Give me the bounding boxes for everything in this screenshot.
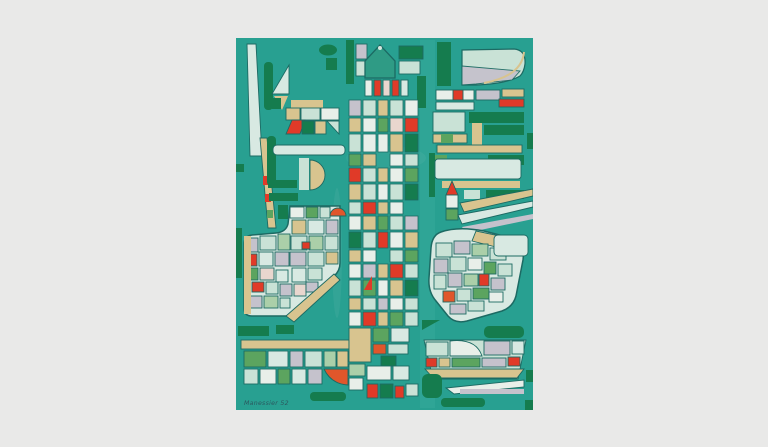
- page-background: Manessier 52: [0, 0, 768, 447]
- painting-canvas: Manessier 52: [236, 38, 533, 410]
- artist-signature: Manessier 52: [244, 400, 289, 407]
- artwork: Manessier 52: [236, 38, 533, 410]
